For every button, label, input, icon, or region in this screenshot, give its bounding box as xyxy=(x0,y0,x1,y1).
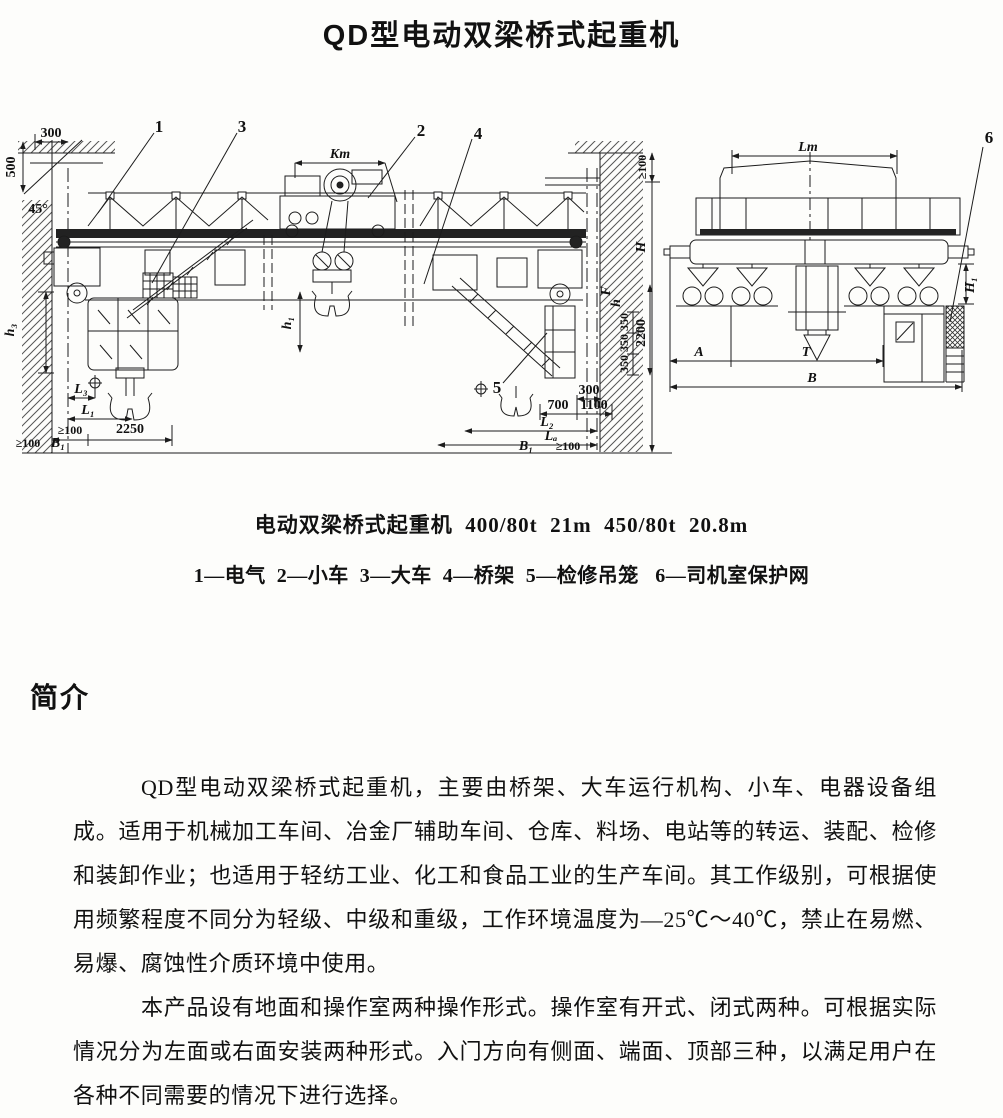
aux-hook xyxy=(499,386,533,416)
dim-700: 700 xyxy=(548,398,569,413)
dim-L1: L₁ xyxy=(80,403,94,418)
cab-side xyxy=(884,306,944,382)
protection-net xyxy=(946,306,964,382)
dim-300-bottom: 300 xyxy=(579,383,600,398)
dim-B1-right: B₁ xyxy=(518,439,533,454)
intro-paragraph-1: QD型电动双梁桥式起重机，主要由桥架、大车运行机构、小车、电器设备组成。适用于机… xyxy=(73,766,937,986)
dim-1100: 1100 xyxy=(580,398,607,413)
dim-ge100-left: ≥100 xyxy=(16,436,41,450)
dim-L3: L₃ xyxy=(73,382,88,397)
dim-Lt: Lт xyxy=(797,140,818,155)
service-cage xyxy=(452,278,575,378)
callout-2: 2 xyxy=(417,121,426,140)
dim-2200: 2200 xyxy=(634,319,649,347)
dim-300-top: 300 xyxy=(41,126,62,141)
crane-technical-drawing: 300 500 45° Kт ≥100 H h₁ h₃ L₃ L₁ ≥100 2… xyxy=(0,108,1003,472)
dim-350-a: 350 xyxy=(617,313,631,331)
intro-text: QD型电动双梁桥式起重机，主要由桥架、大车运行机构、小车、电器设备组成。适用于机… xyxy=(73,766,937,1118)
dim-ge100-bottomright: ≥100 xyxy=(556,439,581,453)
dim-h3: h₃ xyxy=(3,324,18,337)
dim-h: h xyxy=(609,299,624,307)
dim-45deg: 45° xyxy=(28,202,48,217)
hook-position-markers xyxy=(88,375,488,398)
main-hook xyxy=(108,368,152,420)
dim-H: H xyxy=(634,240,649,253)
figure-caption: 电动双梁桥式起重机 400/80t 21m 450/80t 20.8m xyxy=(0,509,1003,539)
dim-h1: h₁ xyxy=(280,317,295,330)
dim-L2: L₂ xyxy=(539,415,554,430)
callout-1: 1 xyxy=(155,117,164,136)
scanned-manual-page: { "page": { "title": "QD型电动双梁桥式起重机" }, "… xyxy=(0,0,1003,1104)
hook-block-side xyxy=(788,266,846,360)
end-beam xyxy=(664,240,974,264)
page-title: QD型电动双梁桥式起重机 xyxy=(0,12,1003,54)
callout-4: 4 xyxy=(474,124,483,143)
end-truck-right xyxy=(538,236,582,304)
callout-3: 3 xyxy=(238,117,247,136)
dim-A: A xyxy=(693,345,703,360)
dim-kt: Kт xyxy=(329,147,350,162)
dim-ge100-topright: ≥100 xyxy=(635,155,649,180)
side-view xyxy=(664,152,974,382)
dim-T: T xyxy=(802,345,812,360)
dim-ge100-approach: ≥100 xyxy=(58,423,83,437)
dim-500: 500 xyxy=(4,157,19,178)
wheel-bogies xyxy=(676,264,940,306)
callout-6: 6 xyxy=(985,128,994,147)
dim-2250: 2250 xyxy=(116,422,144,437)
dim-F: F xyxy=(599,286,614,297)
section-heading: 简介 xyxy=(30,676,90,716)
intro-paragraph-2: 本产品设有地面和操作室两种操作形式。操作室有开式、闭式两种。可根据实际情况分为左… xyxy=(73,986,937,1118)
callout-5: 5 xyxy=(493,378,502,397)
dim-B: B xyxy=(806,371,816,386)
dim-350-c: 350 xyxy=(617,355,631,373)
figure-legend: 1—电气 2—小车 3—大车 4—桥架 5—检修吊笼 6—司机室保护网 xyxy=(0,559,1003,588)
left-wall xyxy=(18,140,115,453)
dim-350-b: 350 xyxy=(617,334,631,352)
bridge-side xyxy=(696,198,960,235)
dim-B1-left: B₁ xyxy=(50,436,65,451)
dim-H1: H₁ xyxy=(963,277,978,294)
